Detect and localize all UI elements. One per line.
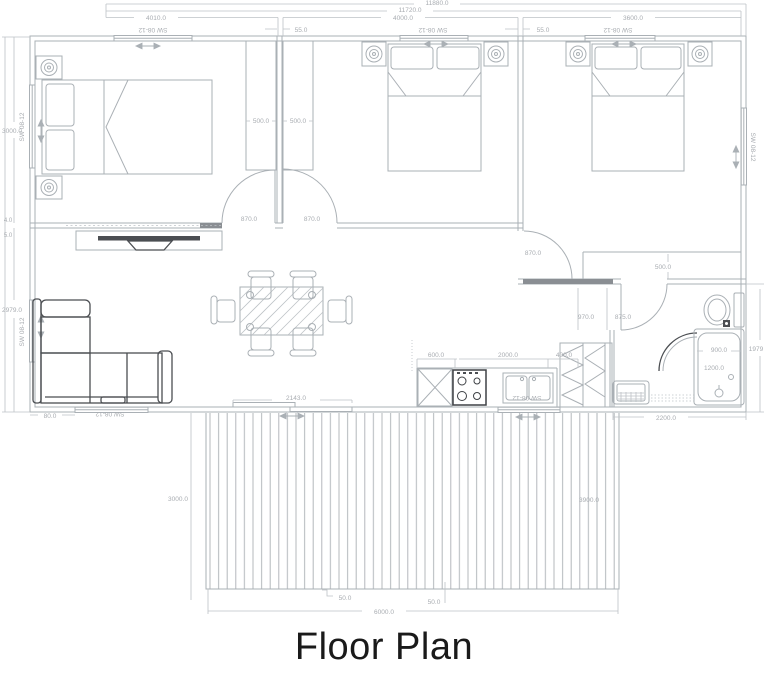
window-bedroom1-left	[30, 85, 36, 168]
dining-chair	[290, 271, 316, 299]
bedroom1-bed	[42, 80, 212, 174]
nightstand-lamp	[36, 176, 62, 199]
sofa	[33, 299, 172, 403]
window-label: SW 08-12	[603, 26, 632, 33]
tv-unit	[76, 231, 222, 250]
bedroom3-bed	[592, 44, 684, 171]
wall-poche-hall	[523, 279, 613, 284]
dim-pantry-width: 400.0	[556, 352, 573, 359]
window-label: SW 08-12	[19, 317, 26, 346]
dim-bedroom2-width: 4000.0	[393, 15, 413, 22]
sliding-door	[233, 403, 352, 412]
dim-bath-width: 2200.0	[656, 415, 676, 422]
dining-chair	[248, 271, 274, 299]
door-bathroom	[621, 284, 667, 330]
dim-deck-depth-right: 3900.0	[579, 497, 599, 504]
deck	[206, 413, 619, 589]
nightstand-lamp	[362, 42, 386, 66]
dim-door-bedroom3: 870.0	[525, 250, 542, 257]
floor-plan-canvas: 11880.0 11720.0 4010.0 4000.0 3600.0 55.…	[0, 0, 768, 675]
bedroom2-bed	[388, 44, 481, 171]
nightstand-lamp	[688, 42, 712, 66]
window-living-left	[30, 300, 36, 362]
window-bedroom2-top	[400, 36, 468, 42]
page-title: Floor Plan	[0, 626, 768, 669]
dim-wall2: 55.0	[537, 27, 550, 34]
window-label: SW 08-12	[95, 410, 124, 417]
d6im-deck-gap-left: 50.0	[339, 595, 352, 602]
dim-gap-a: 4.0	[4, 218, 13, 224]
dim-wardrobe-right: 500.0	[290, 118, 307, 125]
dim-hall-b: 875.0	[615, 314, 632, 321]
dim-living-depth: 2979.0	[2, 307, 22, 314]
dim-sofa-offset: 80.0	[44, 413, 57, 420]
dim-deck-width: 6000.0	[374, 609, 394, 616]
dim-overall-a: 11880.0	[425, 0, 448, 7]
window-label: SW 08-12	[138, 26, 167, 33]
window-kitchen-bottom	[498, 407, 560, 412]
window-label: SW 08-12	[418, 26, 447, 33]
window-bedroom3-top	[585, 36, 655, 42]
dining-chair	[328, 296, 352, 324]
toilet	[704, 293, 744, 327]
dim-bath-height: 1979	[749, 346, 764, 353]
dim-deck-depth-left: 3000.0	[168, 496, 188, 503]
dim-overall-b: 11720.0	[398, 7, 421, 14]
door-bedroom2	[283, 169, 337, 223]
window-bedroom1-top	[114, 36, 192, 42]
dim-sliding-door: 2143.0	[286, 395, 306, 402]
dim-hall-a: 970.0	[578, 314, 595, 321]
dim-deck-gap-right: 50.0	[428, 599, 441, 606]
nightstand-lamp	[484, 42, 508, 66]
window-label: SW 08-12	[749, 133, 756, 162]
dim-tub-width: 900.0	[711, 347, 728, 354]
nightstand-lamp	[36, 56, 62, 79]
dining-chair	[248, 328, 274, 356]
dining-chair	[211, 296, 235, 324]
cooktop	[453, 370, 486, 405]
wardrobe-right	[283, 41, 313, 170]
dim-wall1: 55.0	[295, 27, 308, 34]
dim-kitchen-cabinet: 600.0	[428, 352, 445, 359]
dim-bedroom3-width: 3600.0	[623, 15, 643, 22]
dim-gap-b: 5.0	[4, 233, 13, 239]
window-label: SW 08-12	[19, 112, 26, 141]
dim-tub-length: 1200.0	[704, 365, 724, 372]
bathroom-vanity	[613, 381, 649, 404]
bath-mat	[651, 395, 694, 401]
nightstand-lamp	[566, 42, 590, 66]
dim-closet-depth: 500.0	[655, 264, 672, 271]
dim-door-bedroom1: 870.0	[241, 216, 258, 223]
corner-cabinet	[418, 369, 452, 406]
dim-bedroom1-width: 4010.0	[146, 15, 166, 22]
wardrobe-left	[246, 41, 276, 170]
shower-door	[659, 333, 697, 371]
window-bedroom3-right	[741, 108, 746, 185]
dim-wardrobe-left: 500.0	[253, 118, 270, 125]
dim-kitchen-run: 2000.0	[498, 352, 518, 359]
dim-door-bedroom2: 870.0	[304, 216, 321, 223]
window-label: SW 08-12	[512, 394, 541, 401]
